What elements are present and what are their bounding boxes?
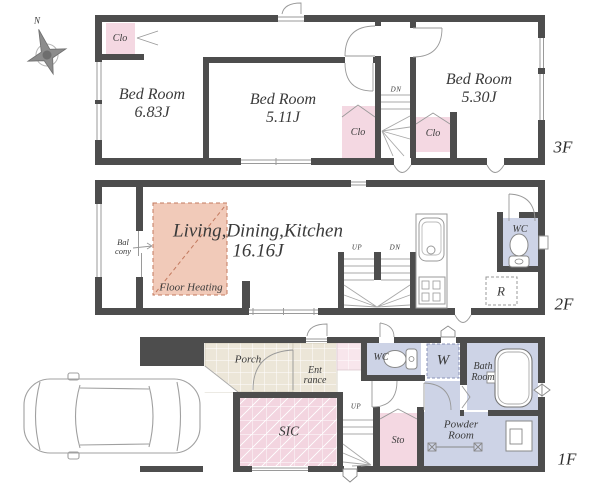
floor-heating-label: Floor Heating — [159, 283, 222, 294]
ldk-area: 16.16J — [232, 242, 283, 261]
bedroom-right-name: Bed Room — [446, 72, 512, 88]
balcony-label-line2: cony — [115, 247, 131, 256]
bedroom-mid-area: 5.11J — [266, 110, 300, 126]
toilet-1f — [384, 349, 417, 369]
entrance-closet-area — [337, 343, 361, 370]
stairs-up-1f: UP — [351, 404, 361, 411]
bedroom-right-area: 5.30J — [461, 90, 496, 106]
stairs-up-2f: UP — [352, 245, 362, 252]
floor1-label: 1F — [558, 451, 577, 468]
floor3-stairs — [381, 95, 410, 156]
floor2-label: 2F — [555, 296, 574, 313]
wc2-label: WC — [513, 225, 528, 235]
kitchen-counter — [416, 214, 447, 308]
stairs-dn-2f: DN — [390, 245, 401, 252]
refrigerator-label: R — [497, 285, 505, 298]
bathroom-label-line1: Bath — [474, 362, 493, 372]
wc1-label: WC — [374, 353, 389, 363]
floor2-plan — [95, 180, 548, 323]
powder-sink — [506, 421, 532, 451]
compass-icon — [20, 23, 73, 80]
ldk-name: Living,Dining,Kitchen — [173, 222, 343, 241]
washer-label: W — [437, 354, 450, 369]
closet-right-label: Clo — [426, 129, 440, 139]
porch-label: Porch — [235, 355, 261, 366]
stairs-dn-3f: DN — [391, 87, 402, 94]
toilet-2f — [509, 234, 529, 267]
sic-label: SIC — [279, 424, 299, 438]
bedroom-mid-name: Bed Room — [250, 92, 316, 108]
floor1-plan — [24, 323, 550, 482]
entrance-label-line2: rance — [304, 376, 327, 386]
floor1-stairs — [343, 420, 373, 466]
bathroom-label-line2: Room — [471, 373, 494, 383]
floor-plan-canvas: N Bed Room 6.83J Bed Room 5.11J Bed Room… — [0, 0, 600, 487]
storage-label: Sto — [392, 436, 405, 446]
bedroom-left-name: Bed Room — [119, 87, 185, 103]
car-outline — [24, 373, 200, 459]
floor3-label: 3F — [554, 139, 573, 156]
bedroom-left-area: 6.83J — [134, 105, 169, 121]
compass-north-label: N — [34, 17, 40, 26]
powder-room-upper — [425, 381, 460, 412]
towel-holder — [539, 236, 548, 249]
closet-topleft-label: Clo — [113, 34, 127, 44]
powder-label-line2: Room — [448, 431, 474, 442]
closet-mid-label: Clo — [351, 128, 365, 138]
